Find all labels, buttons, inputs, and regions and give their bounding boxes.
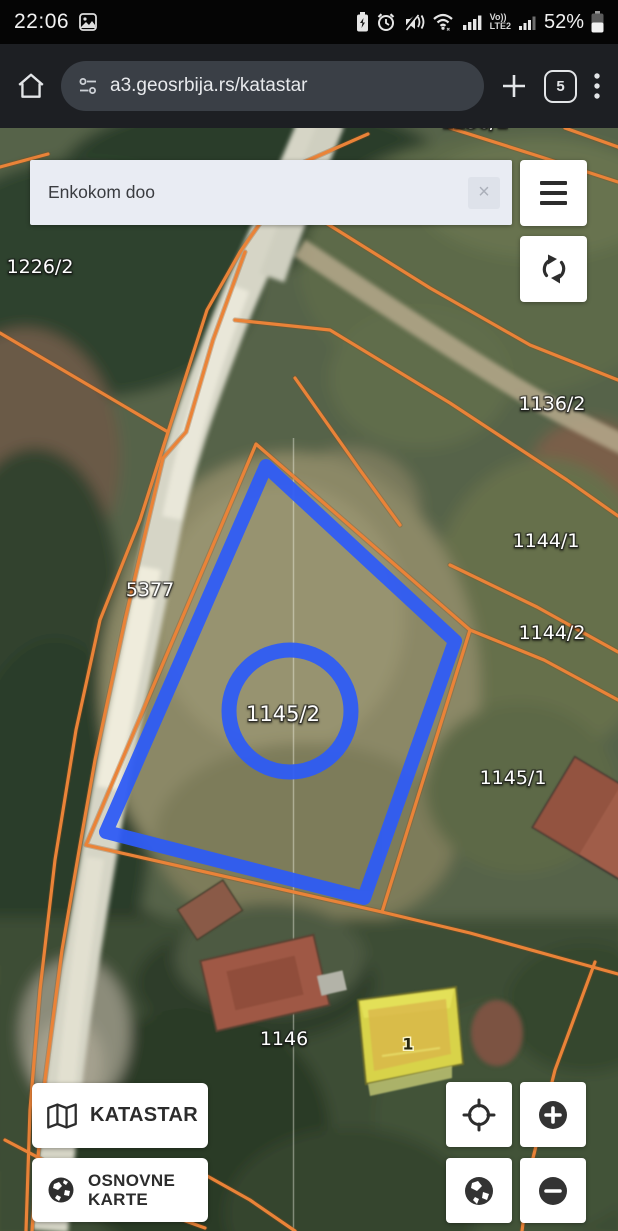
basemap-sphere-icon (46, 1175, 76, 1205)
search-bar[interactable]: Enkokom doo × (30, 160, 512, 225)
search-input[interactable]: Enkokom doo (30, 182, 468, 203)
zoom-out-button[interactable] (520, 1158, 586, 1223)
refresh-button[interactable] (520, 236, 587, 302)
map-icon (46, 1102, 78, 1130)
map-viewport[interactable]: 1236/11226/253771136/21144/11144/21145/1… (0, 128, 618, 1231)
basemap-layer-button[interactable]: OSNOVNE KARTE (32, 1158, 208, 1222)
clear-search-button[interactable]: × (468, 177, 500, 209)
refresh-icon (536, 251, 572, 287)
vibrate-mute-icon (403, 12, 425, 32)
parcel-label-1236-1: 1236/1 (442, 128, 509, 133)
clock: 22:06 (14, 10, 69, 34)
parcel-label-1145-1: 1145/1 (480, 767, 547, 789)
parcel-label-1136-2: 1136/2 (519, 393, 586, 415)
network-type-label: Vo)) LTE2 (490, 13, 511, 31)
building-label: 1 (402, 1035, 413, 1054)
alarm-icon (376, 12, 396, 32)
battery-icon (591, 11, 604, 33)
parcel-label-1146: 1146 (260, 1028, 308, 1050)
parcel-label-5377: 5377 (126, 579, 174, 601)
gallery-icon (79, 13, 97, 31)
plus-icon (537, 1099, 569, 1131)
parcel-label-1226-2: 1226/2 (7, 256, 74, 278)
clear-icon: × (478, 181, 490, 204)
parcel-label-1144-2: 1144/2 (519, 622, 586, 644)
address-bar[interactable]: a3.geosrbija.rs/katastar (61, 61, 484, 111)
globe-icon (463, 1175, 495, 1207)
tab-count: 5 (556, 78, 564, 95)
globe-button[interactable] (446, 1158, 512, 1223)
home-icon[interactable] (16, 71, 46, 101)
wifi-icon (432, 12, 455, 32)
hamburger-icon (540, 181, 567, 185)
new-tab-icon[interactable] (499, 71, 529, 101)
tab-switcher[interactable]: 5 (544, 70, 577, 103)
signal-icon (462, 12, 483, 32)
menu-kebab-icon[interactable] (592, 71, 602, 101)
parcel-label-1144-1: 1144/1 (513, 530, 580, 552)
battery-percent: 52% (544, 11, 584, 34)
crosshair-icon (461, 1097, 497, 1133)
status-bar: 22:06 (0, 0, 618, 44)
katastar-label: KATASTAR (90, 1104, 198, 1127)
osnovne-karte-label: OSNOVNE KARTE (88, 1171, 175, 1209)
signal2-icon (518, 12, 537, 32)
zoom-in-button[interactable] (520, 1082, 586, 1147)
katastar-layer-button[interactable]: KATASTAR (32, 1083, 208, 1148)
parcel-label-1145-2: 1145/2 (246, 702, 320, 726)
locate-button[interactable] (446, 1082, 512, 1147)
phone-screen: 22:06 (0, 0, 618, 1231)
menu-button[interactable] (520, 160, 587, 226)
battery-saver-icon (356, 12, 369, 32)
site-settings-icon[interactable] (77, 75, 99, 97)
browser-toolbar: a3.geosrbija.rs/katastar 5 (0, 44, 618, 128)
minus-icon (537, 1175, 569, 1207)
url-text: a3.geosrbija.rs/katastar (110, 75, 308, 97)
